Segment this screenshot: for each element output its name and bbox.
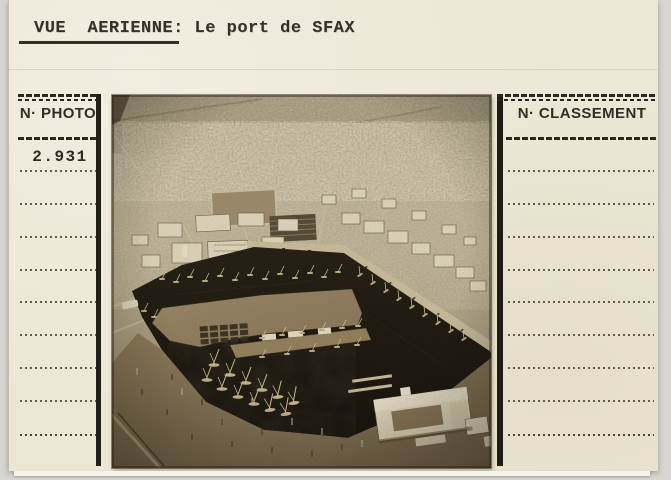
ruled-line xyxy=(508,400,654,402)
card-under-edge xyxy=(14,471,650,476)
index-card: VUE AERIENNE: Le port de SFAX N· PHOTO 2… xyxy=(8,0,658,471)
aerial-photo-sfax-port xyxy=(112,95,491,468)
card-title-underlined: VUE AERIENNE: xyxy=(34,19,184,38)
scanned-archive-page: { "page": { "background_color": "#d6d5d1… xyxy=(0,0,671,480)
ruled-line xyxy=(20,269,96,271)
photo-column-header: N· PHOTO xyxy=(18,105,98,122)
classement-column-header: N· CLASSEMENT xyxy=(508,105,656,122)
ruled-line xyxy=(508,203,654,205)
ruled-line xyxy=(20,203,96,205)
ruled-line xyxy=(508,301,654,303)
ruled-line xyxy=(20,367,96,369)
ruled-line xyxy=(508,334,654,336)
ruled-line xyxy=(508,236,654,238)
ruled-line xyxy=(508,269,654,271)
ruled-line xyxy=(20,434,98,436)
card-title-rest: Le port de SFAX xyxy=(184,19,355,38)
card-title: VUE AERIENNE: Le port de SFAX xyxy=(34,19,355,38)
ruled-line xyxy=(508,434,654,436)
ruled-line xyxy=(20,400,96,402)
classement-column-top-rule xyxy=(497,94,656,101)
photo-column-top-rule xyxy=(18,94,98,101)
ruled-line xyxy=(508,367,654,369)
photo-number: 2.931 xyxy=(18,148,102,166)
ruled-line xyxy=(20,236,96,238)
ruled-line xyxy=(20,334,96,336)
ruled-line xyxy=(20,170,98,172)
classement-column-mid-rule xyxy=(506,137,656,140)
column-divider-left xyxy=(96,94,101,466)
card-crease xyxy=(8,69,658,70)
photo-grain-overlay xyxy=(112,95,491,468)
photo-column-mid-rule xyxy=(18,137,98,140)
ruled-line xyxy=(508,170,654,172)
column-divider-right xyxy=(497,94,503,466)
ruled-line xyxy=(20,301,96,303)
title-underline xyxy=(19,41,179,44)
